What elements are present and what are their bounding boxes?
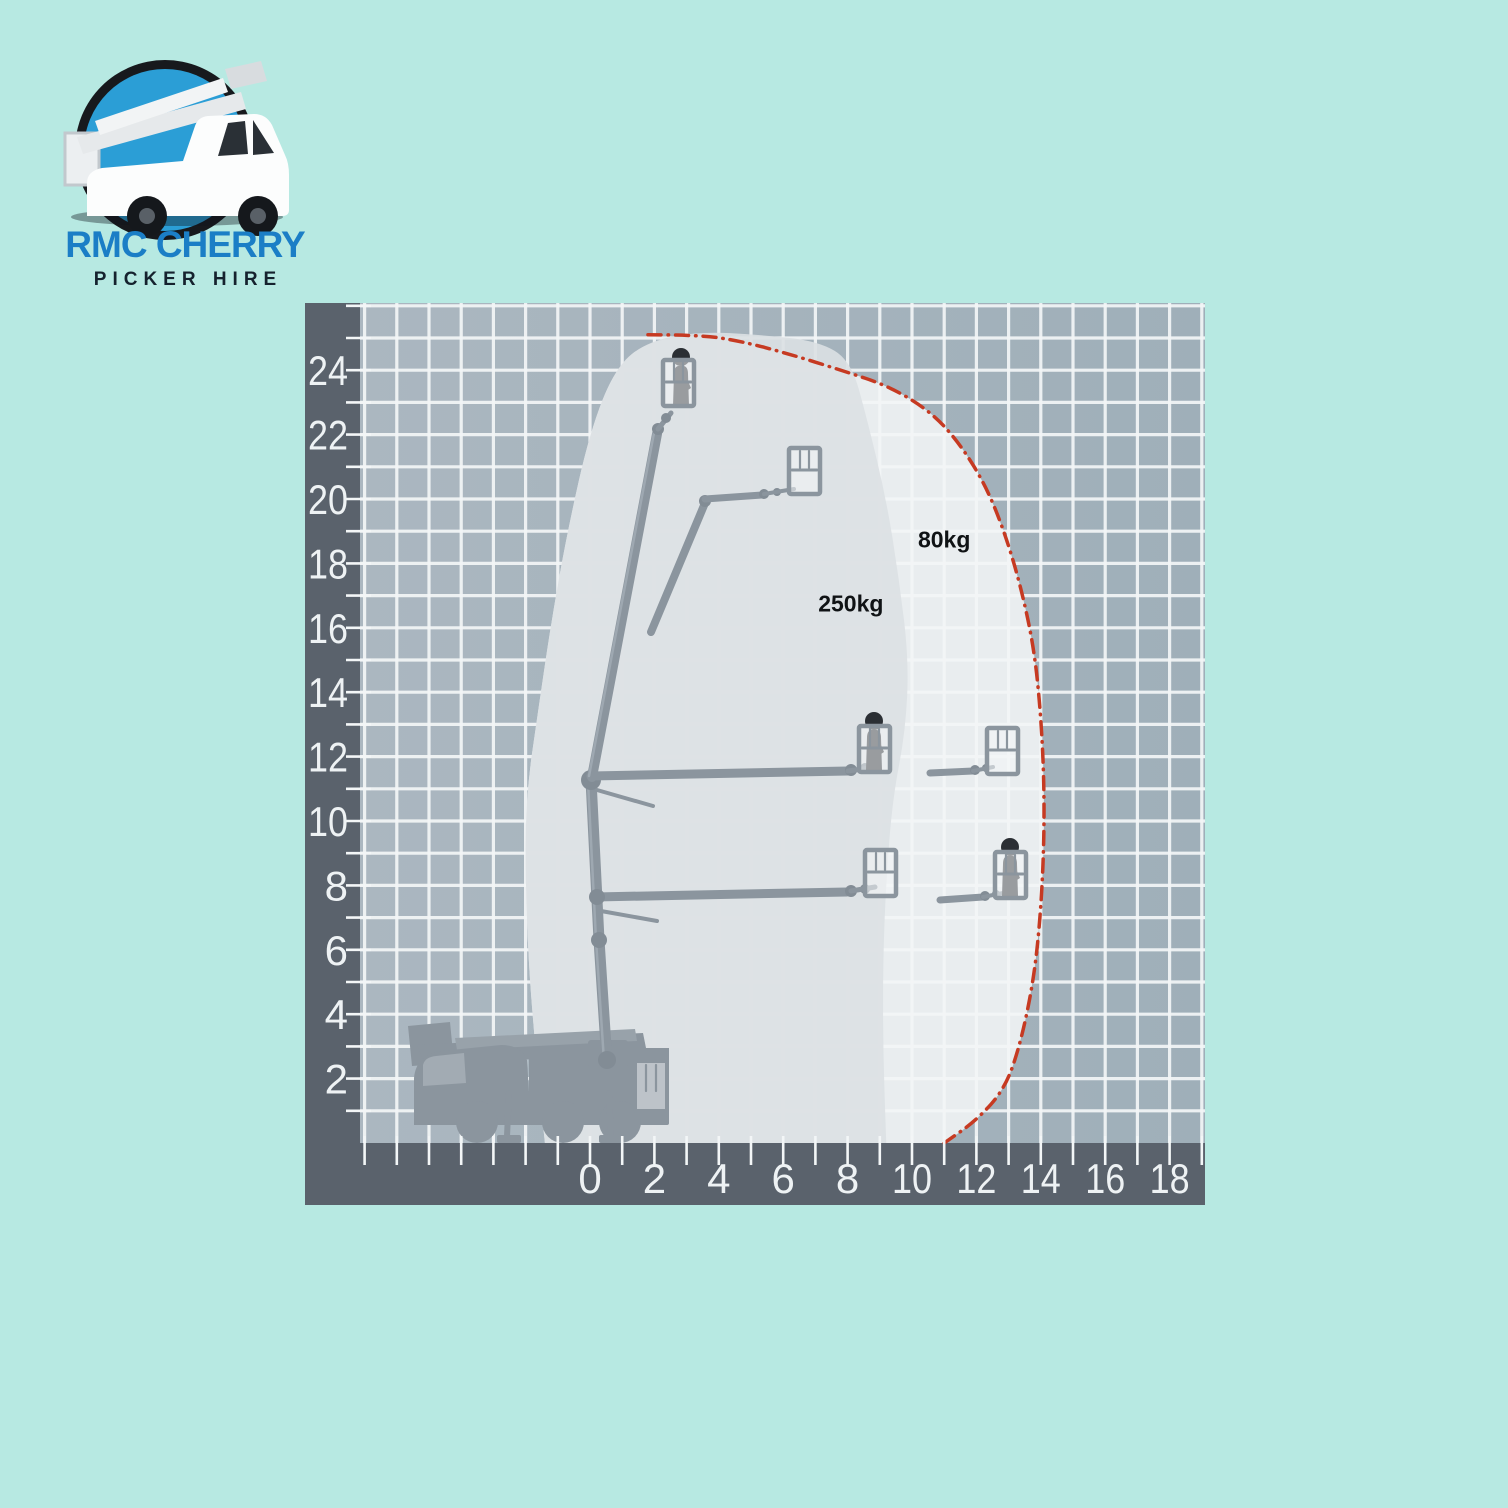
wheel-mid [542, 1101, 584, 1143]
horizontal-boom-8m [595, 892, 847, 897]
extended-boom-piece-12m [930, 771, 973, 773]
platform-basket-24m [663, 360, 694, 406]
y-tick-label: 6 [325, 927, 348, 974]
working-envelope-chart: 02468101214161824681012141618202224 80kg… [305, 303, 1205, 1205]
platform-basket-8m-extended [995, 852, 1026, 898]
company-logo: RMC CHERRY PICKER HIRE [55, 35, 335, 295]
y-tick-label: 12 [308, 734, 348, 781]
logo-title: RMC CHERRY [65, 224, 306, 265]
y-tick-label: 8 [325, 862, 348, 909]
platform-basket-12m [859, 726, 890, 772]
y-tick-label: 22 [308, 412, 348, 459]
y-tick-label: 16 [308, 605, 348, 652]
riser-mid-joint [591, 932, 607, 948]
outrigger-rear-pad [599, 1135, 623, 1143]
x-tick-label: 4 [707, 1155, 730, 1202]
y-tick-label: 2 [325, 1056, 348, 1103]
x-tick-label: 16 [1085, 1155, 1125, 1202]
x-tick-label: 6 [772, 1155, 795, 1202]
truck-silhouette [408, 1022, 669, 1143]
capacity-label-250kg: 250kg [818, 591, 883, 617]
stowed-platform-basket [635, 1061, 667, 1111]
outrigger-front [507, 1093, 509, 1136]
y-tick-label: 24 [308, 347, 348, 394]
lower-joint [589, 889, 605, 905]
outrigger-rear [609, 1093, 611, 1136]
logo-front-hub [250, 208, 266, 224]
extended-boom-piece-8m [940, 897, 983, 900]
knuckle [661, 413, 671, 423]
x-tick-label: 14 [1021, 1155, 1061, 1202]
jib-arm-21m [705, 495, 762, 499]
x-axis-band [305, 1143, 1205, 1205]
y-tick-label: 18 [308, 540, 348, 587]
platform-basket-12m-extended [987, 728, 1018, 774]
page: { "logo": { "line1": "RMC CHERRY", "line… [0, 0, 1508, 1508]
x-tick-label: 18 [1150, 1155, 1190, 1202]
y-tick-label: 14 [308, 669, 348, 716]
y-tick-label: 10 [308, 798, 348, 845]
x-tick-label: 0 [578, 1155, 601, 1202]
reach-diagram-svg: 02468101214161824681012141618202224 80kg… [305, 303, 1205, 1205]
x-tick-label: 10 [892, 1155, 932, 1202]
horizontal-boom-12m [591, 771, 848, 776]
x-tick-label: 12 [956, 1155, 996, 1202]
logo-graphic: RMC CHERRY PICKER HIRE [55, 35, 335, 295]
x-tick-label: 8 [836, 1155, 859, 1202]
platform-basket-21m [789, 448, 820, 494]
x-tick-label: 2 [643, 1155, 666, 1202]
platform-basket-8m [865, 850, 896, 896]
y-tick-label: 4 [325, 991, 348, 1038]
riser-base-joint [598, 1051, 616, 1069]
logo-subtitle: PICKER HIRE [94, 269, 282, 290]
logo-boom-head [225, 61, 267, 89]
outrigger-front-pad [497, 1135, 521, 1143]
capacity-label-80kg: 80kg [918, 526, 970, 552]
logo-rear-hub [139, 208, 155, 224]
cab-window [423, 1053, 466, 1086]
y-tick-label: 20 [308, 476, 348, 523]
